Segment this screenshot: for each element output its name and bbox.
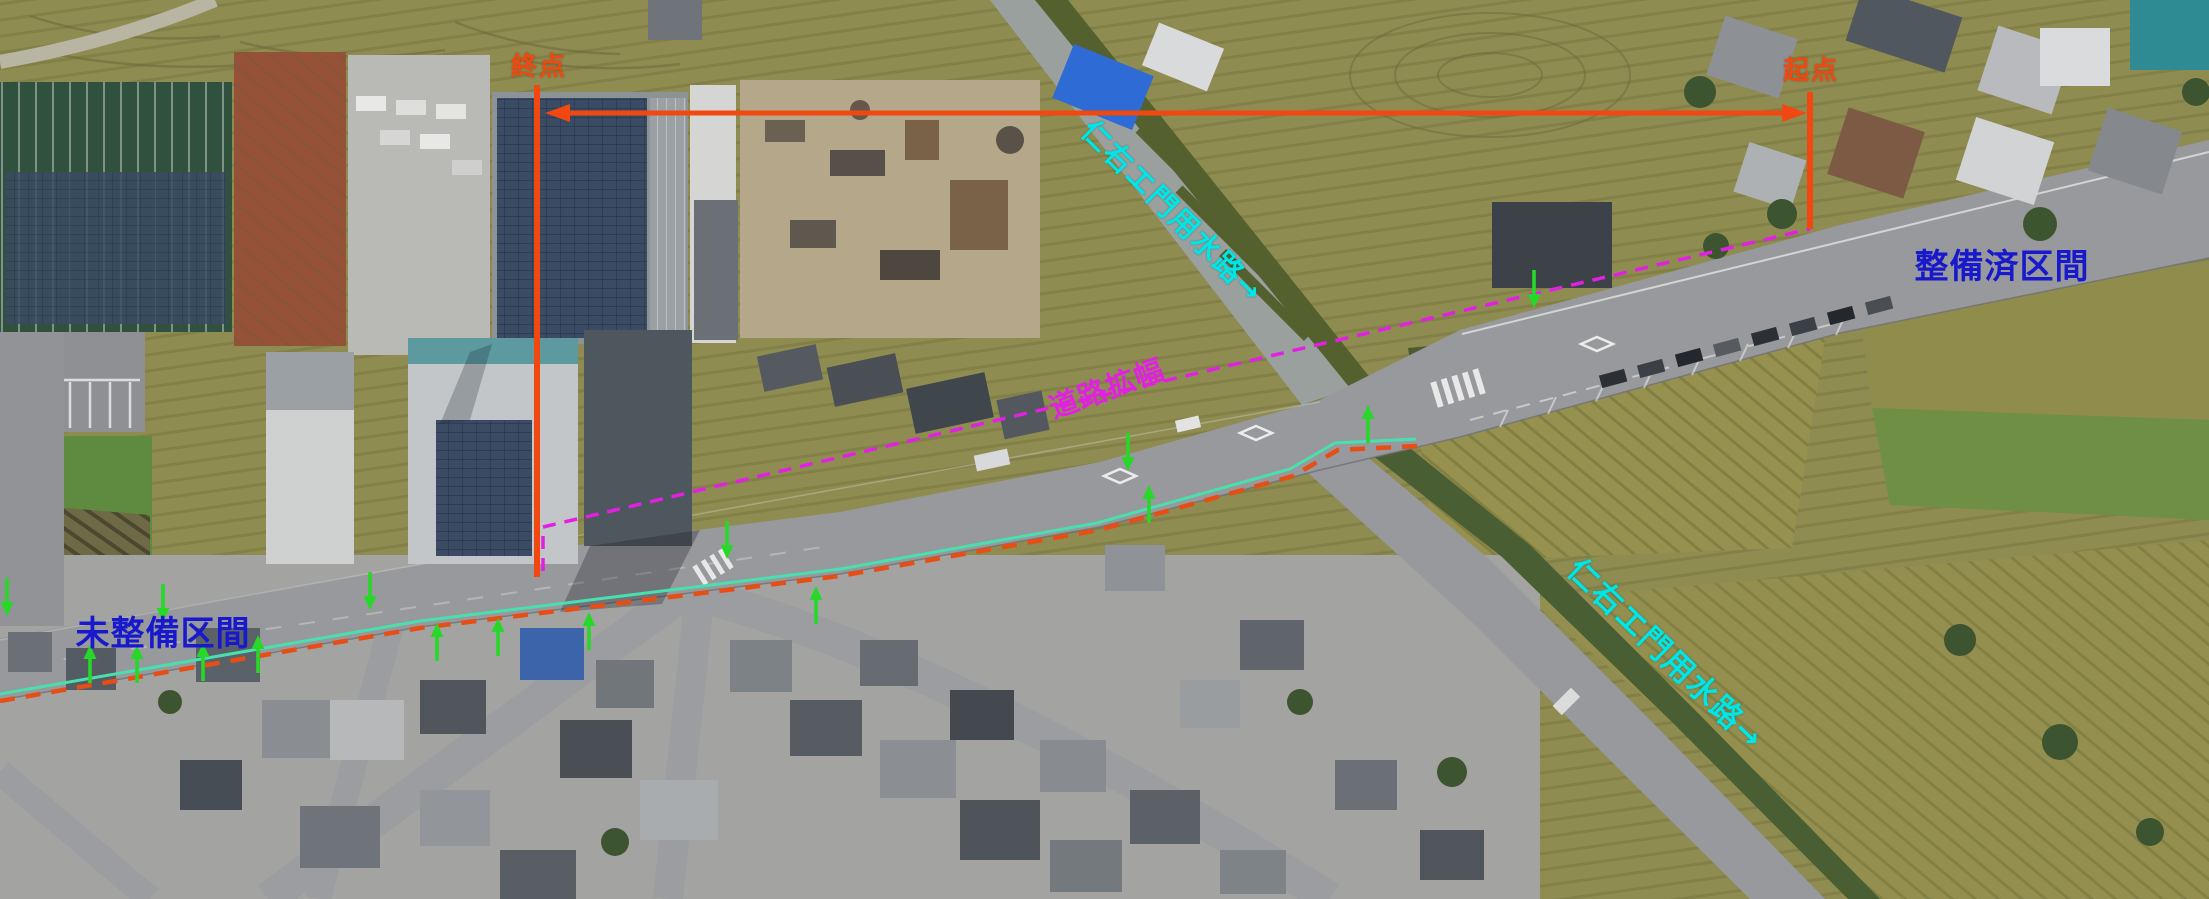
survey-extent-lines — [537, 85, 1810, 577]
right-arrowhead-icon — [1782, 104, 1807, 122]
green-arrow-head-icon — [1122, 457, 1135, 471]
green-arrow-head-icon — [721, 545, 734, 559]
start-point-label: 起点 — [1783, 58, 1839, 84]
boundary-teal-line — [0, 439, 1416, 694]
green-arrow-head-icon — [583, 612, 596, 626]
green-arrow-head-icon — [252, 635, 265, 649]
green-arrow-head-icon — [810, 586, 823, 600]
green-arrow-head-icon — [1362, 405, 1375, 419]
unimproved-section-label: 未整備区間 — [76, 617, 251, 651]
green-arrow-head-icon — [1528, 294, 1541, 308]
green-arrow-head-icon — [1143, 485, 1156, 499]
left-arrowhead-icon — [545, 104, 570, 122]
green-arrow-head-icon — [1, 602, 14, 616]
end-point-label: 終点 — [511, 54, 567, 80]
road-widening-dashed-line — [543, 229, 1810, 571]
improved-section-label: 整備済区間 — [1915, 250, 2090, 284]
boundary-red-dashed-line — [0, 446, 1418, 701]
green-arrow-head-icon — [364, 596, 377, 610]
aerial-map: 終点 起点 仁右エ門用水路→ 仁右エ門用水路→ 整備済区間 未整備区間 道路拡幅 — [0, 0, 2209, 899]
